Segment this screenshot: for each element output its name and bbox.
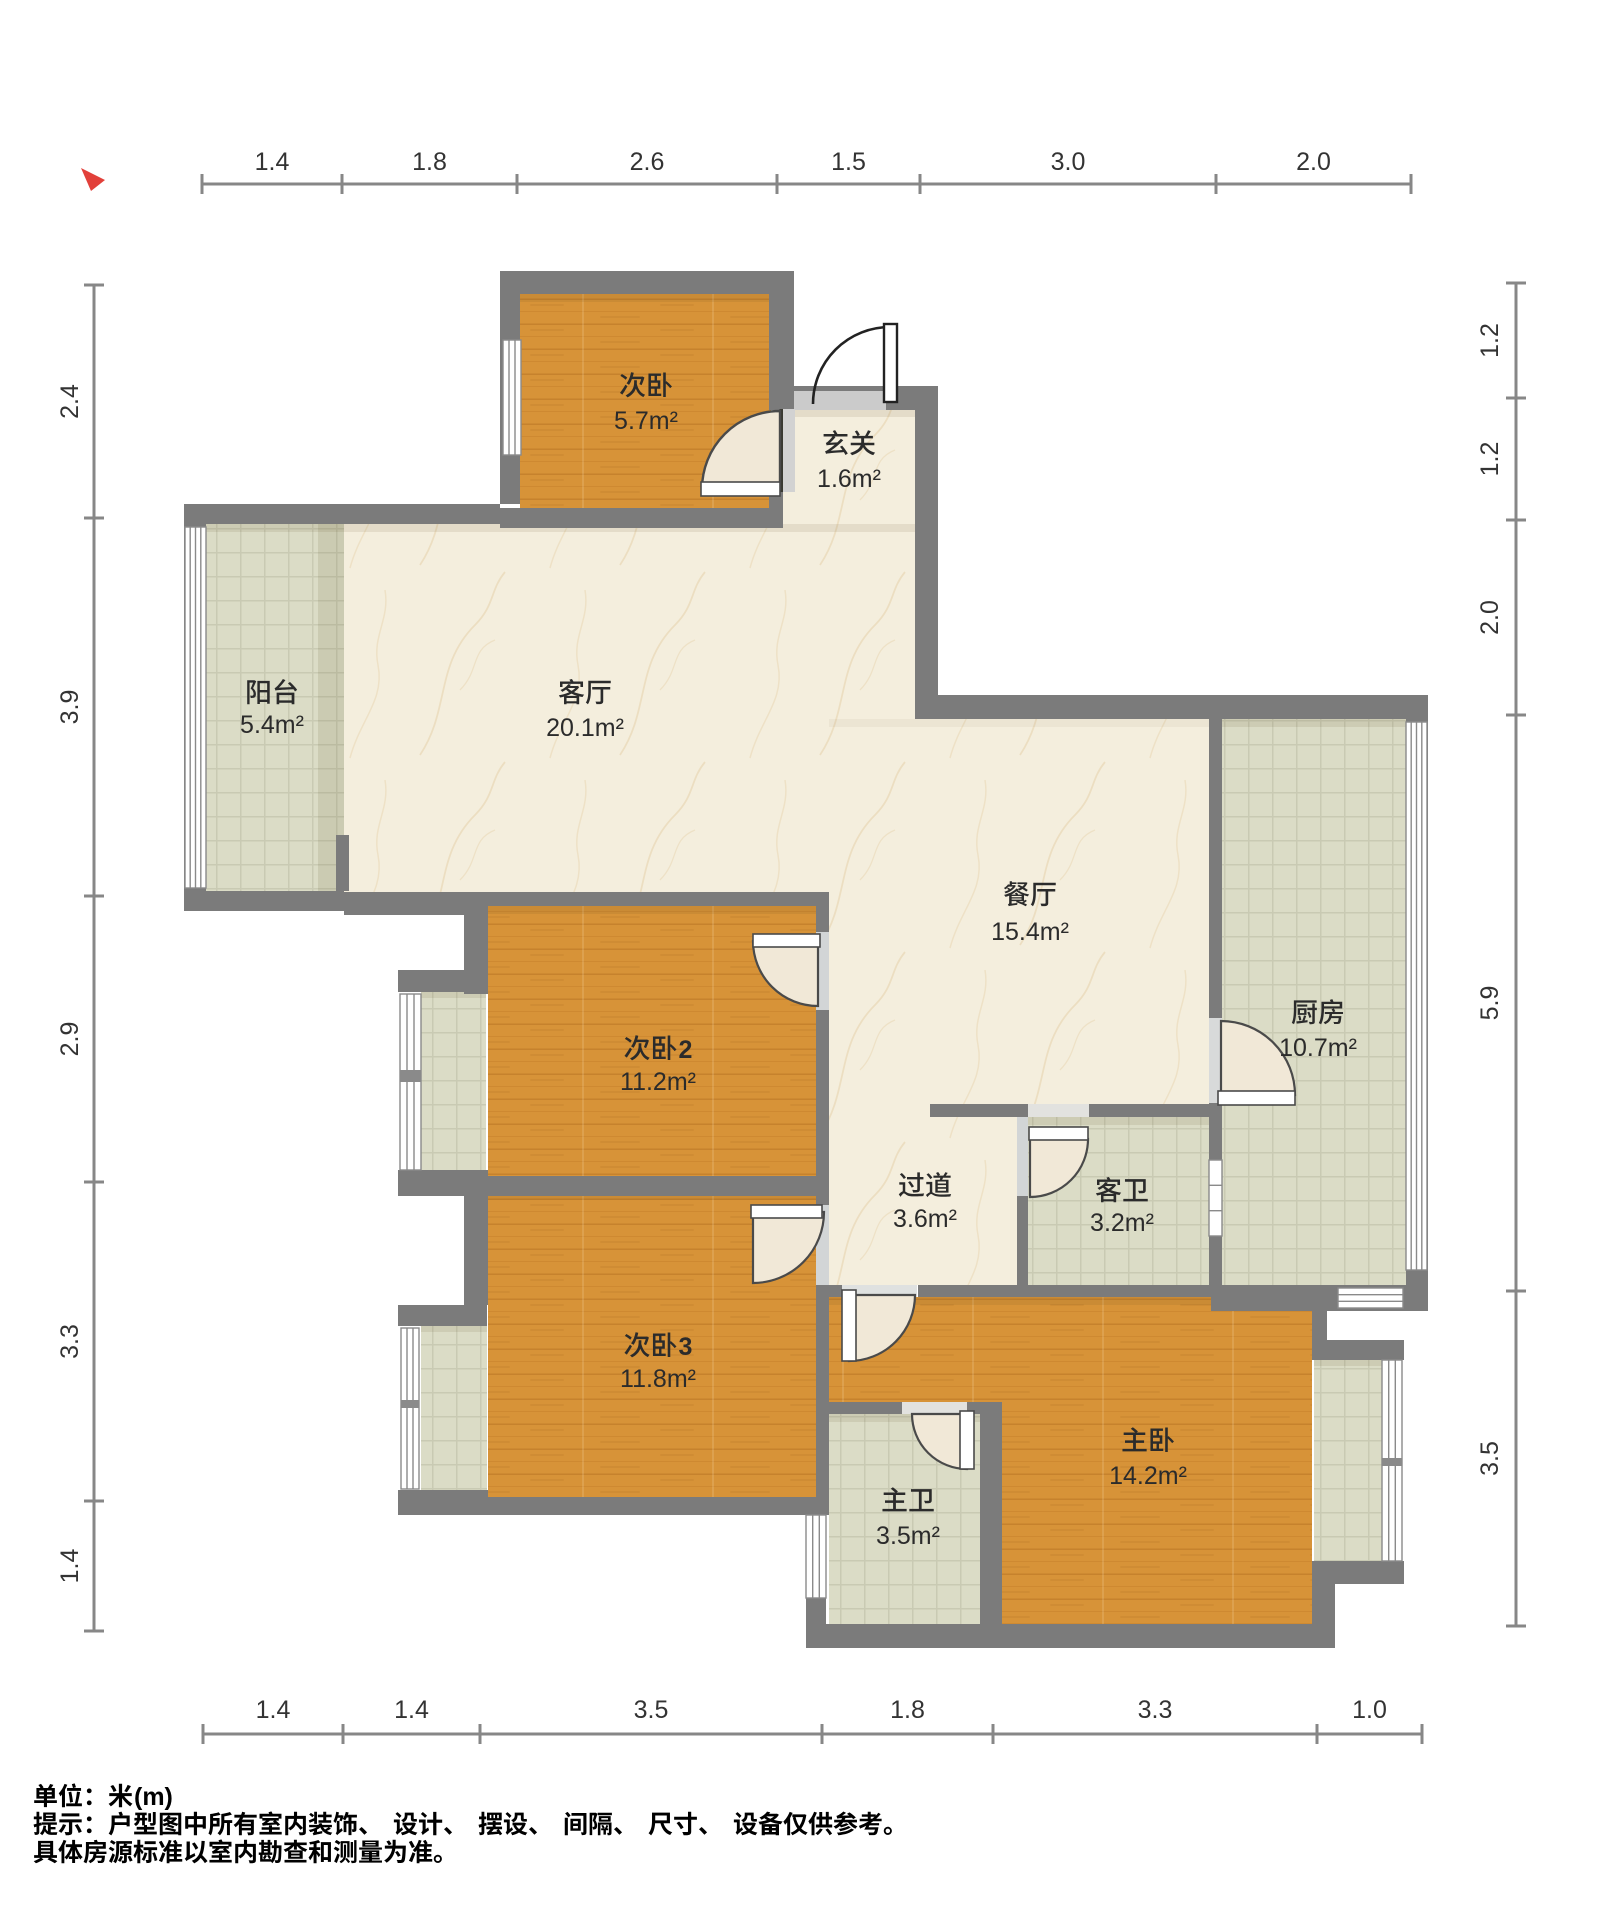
svg-text:2.4: 2.4 [56,384,84,419]
svg-text:5.4m²: 5.4m² [240,711,304,739]
svg-text:(m): (m) [134,1783,173,1811]
svg-text:1.2: 1.2 [1476,442,1504,477]
svg-text:2.0: 2.0 [1476,600,1504,635]
svg-text:3.2m²: 3.2m² [1090,1209,1154,1237]
svg-text:2.6: 2.6 [630,148,665,176]
svg-text:1.6m²: 1.6m² [817,465,881,493]
svg-text:14.2m²: 14.2m² [1109,1462,1187,1490]
svg-text:1.2: 1.2 [1476,323,1504,358]
svg-text:5.7m²: 5.7m² [614,407,678,435]
svg-text:1.4: 1.4 [56,1549,84,1584]
svg-text:1.4: 1.4 [255,148,290,176]
svg-text:2.9: 2.9 [56,1022,84,1057]
svg-text:5.9: 5.9 [1476,986,1504,1021]
svg-text:1.8: 1.8 [412,148,447,176]
svg-text:3.6m²: 3.6m² [893,1205,957,1233]
svg-text:1.4: 1.4 [394,1696,429,1724]
svg-text:20.1m²: 20.1m² [546,714,624,742]
svg-text:3.5: 3.5 [634,1696,669,1724]
svg-text:2.0: 2.0 [1296,148,1331,176]
svg-text:3.3: 3.3 [56,1324,84,1359]
svg-text:11.2m²: 11.2m² [620,1068,696,1096]
svg-text:10.7m²: 10.7m² [1279,1034,1357,1062]
svg-text:2: 2 [679,1036,693,1064]
svg-text:1.5: 1.5 [831,148,866,176]
svg-text:1.4: 1.4 [256,1696,291,1724]
svg-text:3: 3 [679,1333,693,1361]
svg-text:3.9: 3.9 [56,690,84,725]
svg-text:1.8: 1.8 [890,1696,925,1724]
svg-text:15.4m²: 15.4m² [991,918,1069,946]
svg-text:1.0: 1.0 [1352,1696,1387,1724]
svg-text:3.5: 3.5 [1476,1441,1504,1476]
svg-text:11.8m²: 11.8m² [620,1365,696,1393]
svg-text:3.3: 3.3 [1138,1696,1173,1724]
svg-text:3.5m²: 3.5m² [876,1522,940,1550]
svg-text:3.0: 3.0 [1051,148,1086,176]
